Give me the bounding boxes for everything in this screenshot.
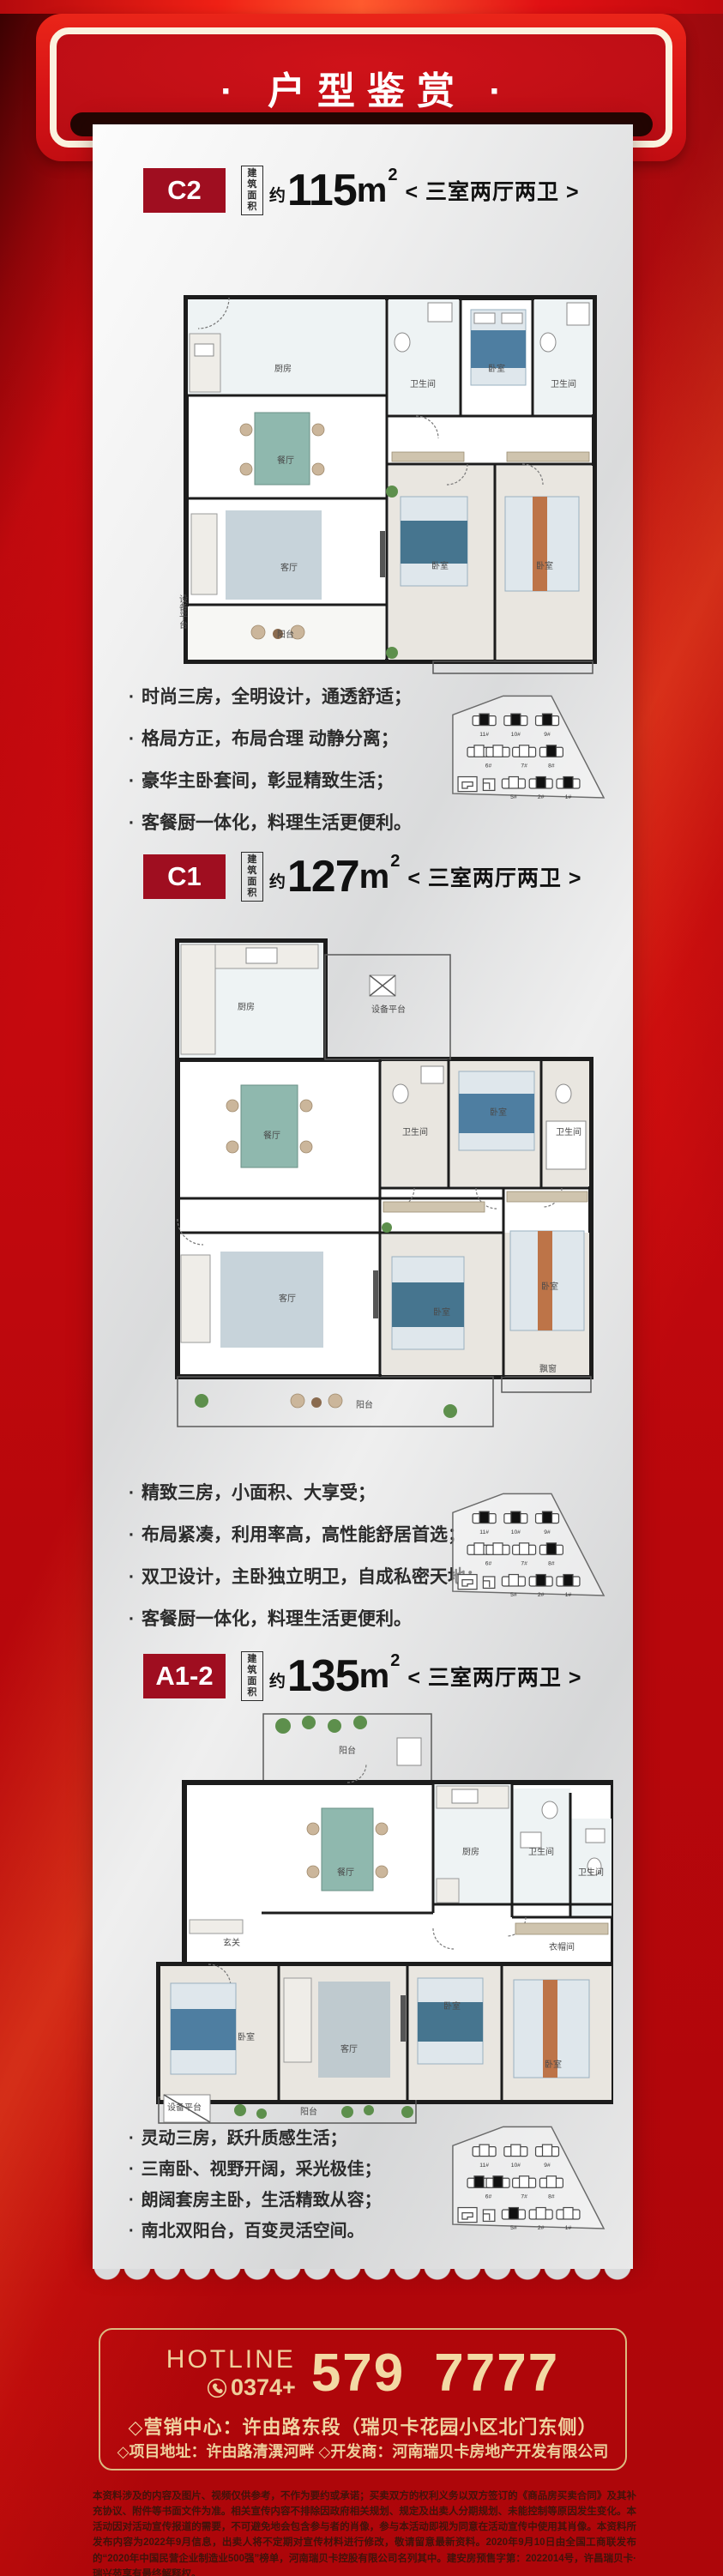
building-number-label: 9# (544, 1529, 551, 1535)
building-number-label: 5# (510, 794, 517, 800)
building-number-label: 9# (544, 2163, 551, 2169)
area-unit: m (359, 1659, 390, 1693)
building-number-label: 10# (511, 2163, 521, 2169)
room-label: 卫生间 (551, 378, 576, 389)
building-number-label: 1# (565, 2225, 572, 2231)
room-label: 卫生间 (528, 1846, 554, 1857)
building-number-label: 8# (548, 1561, 555, 1567)
area-value: 127 (287, 854, 359, 899)
area-unit-sup: 2 (390, 852, 400, 872)
project-address-value: 许由路清潩河畔 (206, 2443, 314, 2460)
room-label: 设备平台 (371, 1004, 406, 1015)
list-item: ·豪华主卧套间，彰显精致生活； (129, 770, 472, 793)
site-keyplan-c2: 11#10#9#6#7#8#5#2#1# (444, 690, 612, 807)
list-item: ·布局紧凑，利用率高，高性能舒居首选； (129, 1524, 472, 1547)
site-keyplan-a12: 11#10#9#6#7#8#5#2#1# (444, 2121, 612, 2238)
building-number-label: 9# (544, 732, 551, 738)
feature-list-a12: ·灵动三房，跃升质感生活； ·三南卧、视野开阔，采光极佳； ·朗阔套房主卧，生活… (129, 2129, 472, 2253)
building-number-label: 8# (548, 763, 555, 769)
page-title: · 户型鉴赏 · (208, 60, 514, 115)
list-item: ·客餐厨一体化，料理生活更便利。 (129, 1608, 472, 1631)
list-item: ·精致三房，小面积、大享受； (129, 1482, 472, 1505)
marketing-value: 许由路东段（瑞贝卡花园小区北门东侧） (242, 2416, 597, 2438)
room-label: 卧室 (490, 1107, 507, 1118)
room-label: 卧室 (545, 2059, 562, 2070)
room-label: 客厅 (340, 2043, 358, 2054)
top-red-band (0, 0, 723, 14)
developer-value: 河南瑞贝卡房地产开发有限公司 (392, 2443, 608, 2460)
poster: · 户型鉴赏 · C2 建筑面积 约 115 m 2 < 三室两厅两卫 > (0, 0, 723, 2576)
list-item: ·灵动三房，跃升质感生活； (129, 2129, 472, 2148)
hotline-label: HOTLINE (166, 2345, 296, 2374)
hotline-row: HOTLINE 0374+ 5797777 (100, 2345, 625, 2401)
hotline-number: 5797777 (311, 2347, 559, 2400)
address-developer-line: ◇项目地址：许由路清潩河畔 ◇开发商：河南瑞贝卡房地产开发有限公司 (100, 2440, 625, 2462)
building-number-label: 11# (479, 2163, 489, 2169)
room-label: 厨房 (274, 363, 292, 374)
room-label: 客厅 (280, 562, 298, 573)
marketing-label: ◇营销中心： (129, 2416, 243, 2438)
area-unit-sup: 2 (388, 166, 397, 185)
area-value: 115 (287, 168, 357, 213)
room-label: 飘窗 (539, 1363, 557, 1374)
feature-list-c2: ·时尚三房，全明设计，通透舒适； ·格局方正，布局合理 动静分离； ·豪华主卧套… (129, 686, 472, 854)
room-label: 厨房 (462, 1846, 479, 1857)
building-number-label: 10# (511, 1529, 521, 1535)
room-label: 卧室 (443, 2000, 461, 2012)
room-label: 玄关 (223, 1937, 240, 1948)
list-item: ·南北双阳台，百变灵活空间。 (129, 2222, 472, 2241)
unit-badge-a12: A1-2 (143, 1654, 226, 1698)
phone-icon (207, 2378, 227, 2398)
room-label: 餐厅 (263, 1130, 280, 1141)
section-c1-header: C1 建筑面积 约 127 m 2 < 三室两厅两卫 > (143, 854, 581, 899)
building-number-label: 1# (565, 1592, 572, 1598)
list-item: ·三南卧、视野开阔，采光极佳； (129, 2160, 472, 2179)
area-label-box: 建筑面积 (241, 852, 263, 902)
floor-plan-a12: 阳台餐厅厨房卫生间卫生间玄关衣帽间卧室客厅卧室卧室设备平台阳台 (150, 1707, 613, 2127)
building-number-label: 2# (538, 1592, 545, 1598)
room-label: 阳台 (356, 1399, 373, 1410)
building-number-label: 2# (538, 794, 545, 800)
list-item: ·格局方正，布局合理 动静分离； (129, 728, 472, 751)
unit-badge-c1: C1 (143, 854, 226, 899)
room-label: 卧室 (488, 363, 505, 374)
room-label: 衣帽间 (549, 1941, 575, 1952)
room-spec: < 三室两厅两卫 > (407, 861, 581, 892)
walls-c2 (186, 298, 594, 673)
room-label: 厨房 (238, 1001, 255, 1012)
hotline-left: HOTLINE 0374+ (166, 2345, 296, 2401)
area-unit: m (359, 860, 390, 894)
room-label: 阳台 (339, 1745, 356, 1756)
area-unit-sup: 2 (390, 1651, 400, 1671)
room-spec: < 三室两厅两卫 > (407, 1661, 581, 1692)
building-number-label: 11# (479, 732, 489, 738)
building-number-label: 6# (485, 2194, 492, 2200)
building-number-label: 7# (521, 2194, 527, 2200)
hotline-prefix-text: 0374+ (231, 2374, 296, 2401)
room-label: 卧室 (433, 1306, 450, 1318)
area-approx: 约 (269, 183, 286, 206)
room-label: 客厅 (279, 1293, 296, 1304)
area-approx: 约 (269, 869, 286, 892)
area-value: 135 (287, 1654, 359, 1698)
project-address-label: ◇项目地址： (117, 2443, 207, 2460)
room-label: 卫生间 (402, 1126, 428, 1137)
area-unit: m (357, 173, 388, 208)
building-number-label: 7# (521, 763, 527, 769)
room-label: 设备平台 (178, 594, 188, 630)
building-number-label: 7# (521, 1561, 527, 1567)
hotline-prefix: 0374+ (166, 2374, 296, 2401)
room-label: 卧室 (238, 2031, 255, 2042)
marketing-center-line: ◇营销中心：许由路东段（瑞贝卡花园小区北门东侧） (100, 2412, 625, 2440)
building-number-label: 5# (510, 1592, 517, 1598)
building-number-label: 6# (485, 1561, 492, 1567)
room-label: 卧室 (536, 560, 553, 571)
list-item: ·双卫设计，主卧独立明卫，自成私密天地； (129, 1566, 472, 1589)
floor-plan-c1: 厨房设备平台餐厅卫生间卧室卫生间客厅卧室卧室飘窗阳台 (167, 931, 613, 1437)
building-number-label: 1# (565, 794, 572, 800)
building-number-label: 8# (548, 2194, 555, 2200)
section-a12-header: A1-2 建筑面积 约 135 m 2 < 三室两厅两卫 > (143, 1654, 581, 1698)
building-number-label: 6# (485, 763, 492, 769)
room-label: 卫生间 (410, 378, 436, 389)
hotline-panel: HOTLINE 0374+ 5797777 ◇营销中心：许由路东段（瑞贝卡花园小… (99, 2328, 627, 2470)
unit-badge-c2: C2 (143, 168, 226, 213)
area-approx: 约 (269, 1668, 286, 1692)
room-label: 卧室 (541, 1281, 558, 1292)
room-label: 阳台 (300, 2106, 317, 2117)
area-label-box: 建筑面积 (241, 1651, 263, 1702)
area-label-box: 建筑面积 (241, 166, 263, 216)
building-number-label: 2# (538, 2225, 545, 2231)
room-label: 阳台 (277, 629, 294, 640)
legal-disclaimer: 本资料涉及的内容及图片、视频仅供参考，不作为要约或承诺；买卖双方的权利义务以双方… (93, 2489, 636, 2576)
room-label: 卧室 (431, 560, 449, 571)
card-scalloped-edge (93, 2269, 633, 2286)
feature-list-c1: ·精致三房，小面积、大享受； ·布局紧凑，利用率高，高性能舒居首选； ·双卫设计… (129, 1482, 472, 1650)
site-keyplan-c1: 11#10#9#6#7#8#5#2#1# (444, 1487, 612, 1605)
list-item: ·客餐厨一体化，料理生活更便利。 (129, 812, 472, 835)
list-item: ·朗阔套房主卧，生活精致从容； (129, 2191, 472, 2210)
section-c2-header: C2 建筑面积 约 115 m 2 < 三室两厅两卫 > (143, 168, 580, 213)
room-label: 设备平台 (167, 2102, 202, 2113)
room-label: 卫生间 (556, 1126, 581, 1137)
building-number-label: 10# (511, 732, 521, 738)
room-label: 卫生间 (578, 1867, 604, 1878)
developer-label: ◇开发商： (319, 2443, 393, 2460)
list-item: ·时尚三房，全明设计，通透舒适； (129, 686, 472, 709)
building-number-label: 5# (510, 2225, 517, 2231)
room-spec: < 三室两厅两卫 > (405, 175, 579, 206)
building-number-label: 11# (479, 1529, 489, 1535)
room-label: 餐厅 (337, 1867, 354, 1878)
room-label: 餐厅 (277, 455, 294, 466)
floor-plan-c2: 厨房餐厅客厅阳台卫生间卧室卫生间卧室卧室设备平台 (176, 286, 605, 679)
